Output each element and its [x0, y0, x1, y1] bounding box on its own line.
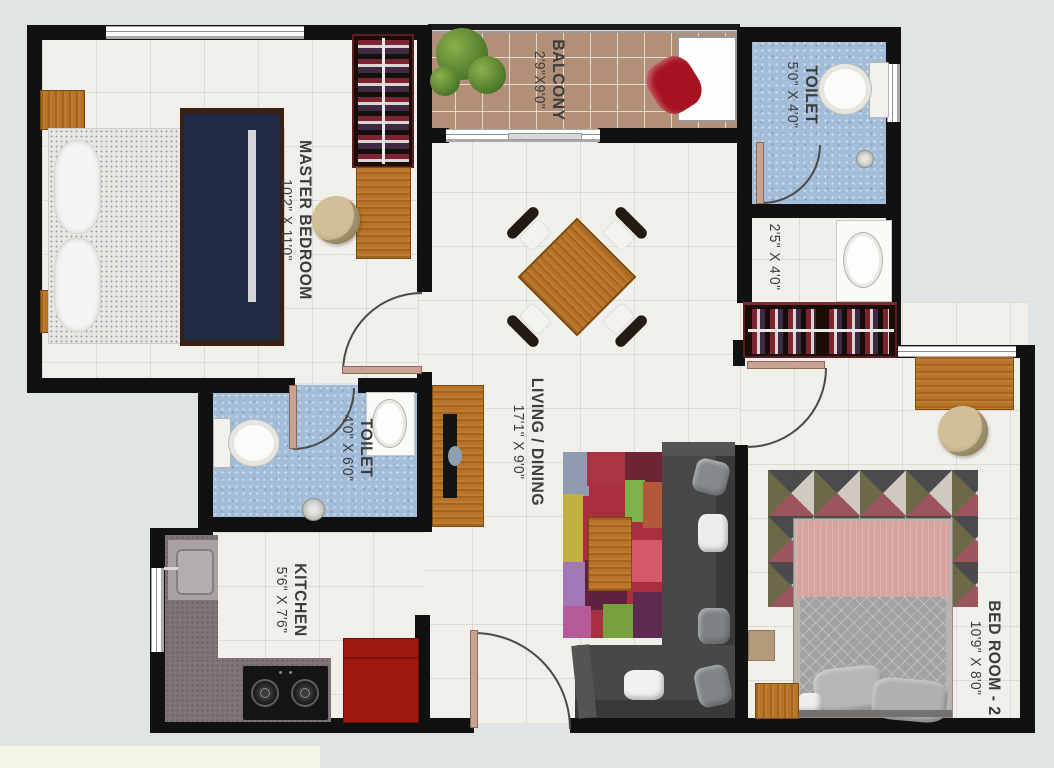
room-dims: 2'9"X9'0": [530, 39, 548, 120]
sofa-pillow: [698, 514, 728, 552]
room-dims: 2'5" X 4'0": [765, 224, 783, 291]
tv-console-dot: [448, 446, 462, 466]
sofa-pillow: [698, 608, 730, 644]
master-desk: [356, 167, 411, 259]
kitchen-window: [151, 568, 164, 652]
shower-drain: [302, 498, 325, 521]
room-name: TOILET: [356, 415, 376, 482]
bedroom2-desk-chair: [938, 406, 988, 456]
main-entrance-door-leaf: [470, 630, 478, 728]
room-label-living-dining: LIVING / DINING 17'1" X 9'0": [509, 378, 547, 506]
rug-patch: [603, 604, 633, 638]
wardrobe-clothes: [358, 40, 382, 162]
room-dims: 4'0" X 6'0": [338, 415, 356, 482]
rug-patch: [563, 494, 583, 564]
stove-knob: [289, 671, 292, 674]
side-table: [748, 630, 775, 661]
nightstand: [755, 683, 799, 719]
sofa-armrest: [662, 442, 735, 456]
room-name: KITCHEN: [290, 563, 310, 636]
sink-basin: [176, 549, 214, 595]
coffee-table: [588, 517, 632, 591]
bedroom2-door-leaf: [747, 361, 825, 369]
room-label-bedroom-2: BED ROOM - 2 10'9" X 8'0": [966, 600, 1004, 715]
gas-stove: [243, 666, 328, 720]
room-label-toilet-left: TOILET 4'0" X 6'0": [338, 415, 376, 482]
stove-knob: [279, 671, 282, 674]
bedroom2-bed: [793, 518, 953, 718]
room-name: LIVING / DINING: [527, 378, 547, 506]
room-name: BED ROOM - 2: [984, 600, 1004, 715]
wall-bottom-right: [570, 718, 1035, 733]
rug-patch: [563, 562, 587, 608]
toilet-bowl: [818, 63, 872, 115]
rug-patch: [587, 452, 627, 486]
master-door-leaf: [342, 366, 422, 374]
master-wardrobe: [352, 34, 414, 168]
master-window: [106, 26, 304, 39]
room-label-master-bedroom: MASTER BEDROOM 10'2" X 11'0": [277, 140, 315, 300]
wall-top-toilet: [737, 27, 901, 42]
sink-faucet: [164, 567, 178, 570]
bed-blanket: [796, 521, 950, 599]
toilet-tank: [869, 62, 889, 118]
wall-master-bottom: [27, 378, 295, 393]
wall-master-right-upper: [417, 25, 432, 292]
rug-patch: [563, 606, 591, 638]
stove-burner: [251, 679, 279, 707]
master-bed-blanket: [184, 114, 280, 340]
bedroom2-window: [898, 346, 1016, 357]
stove-burner: [291, 679, 319, 707]
fridge-door-line: [344, 657, 418, 659]
refrigerator: [343, 638, 419, 723]
wardrobe-rod: [382, 38, 385, 164]
wall-living-bedroom2-divider: [733, 445, 748, 733]
pillow: [54, 140, 101, 234]
toilet-top-door-leaf: [756, 142, 764, 204]
wall-toilet-passage: [737, 204, 901, 218]
wall-balcony-living-right: [598, 128, 750, 143]
kitchen-sink: [168, 540, 218, 600]
room-label-toilet-top: TOILET 5'0" X 4'0": [783, 62, 821, 129]
toilet-left-door-leaf: [289, 385, 297, 449]
sofa-pillow: [624, 670, 664, 700]
bedroom2-wardrobe: [743, 302, 897, 358]
floor-plan: MASTER BEDROOM 10'2" X 11'0" BALCONY 2'9…: [0, 0, 1054, 768]
shower-drain: [856, 150, 874, 168]
wall-left-master: [27, 25, 42, 393]
balcony-plant: [430, 66, 460, 96]
room-dims: 10'9" X 8'0": [966, 600, 984, 715]
bed-headboard: [794, 710, 952, 717]
room-label-passage: 2'5" X 4'0": [765, 224, 783, 291]
washbasin: [372, 399, 407, 448]
room-dims: 10'2" X 11'0": [277, 140, 295, 300]
washbasin: [843, 232, 883, 288]
pillow: [54, 238, 101, 332]
toilet-bowl: [228, 419, 280, 467]
room-dims: 17'1" X 9'0": [509, 378, 527, 506]
room-name: TOILET: [801, 62, 821, 129]
bedroom2-desk: [915, 356, 1014, 410]
room-name: MASTER BEDROOM: [295, 140, 315, 300]
rug-patch: [633, 592, 663, 638]
master-desk-chair: [312, 196, 360, 244]
wardrobe-rod: [748, 329, 894, 332]
room-dims: 5'0" X 4'0": [783, 62, 801, 129]
wardrobe-clothes: [385, 40, 409, 162]
room-name: BALCONY: [548, 39, 568, 120]
rug-patch: [643, 482, 663, 528]
nightstand: [40, 90, 85, 130]
wall-bedroom2-right: [1020, 345, 1035, 733]
legend-strip: [0, 746, 320, 768]
rug-patch: [625, 452, 663, 482]
balcony-plant: [468, 56, 506, 94]
wall-toilet-left-left: [198, 378, 213, 532]
room-dims: 5'6" X 7'6": [272, 563, 290, 636]
master-bed-runner: [248, 130, 256, 302]
rug-patch: [625, 480, 645, 522]
balcony-slider-panel: [508, 133, 582, 140]
room-label-kitchen: KITCHEN 5'6" X 7'6": [272, 563, 310, 636]
wall-balcony-parapet: [428, 24, 740, 30]
wall-toilet-left-right: [417, 372, 432, 532]
rug-patch: [563, 452, 589, 496]
wall-living-toilet-divider: [737, 27, 752, 303]
room-label-balcony: BALCONY 2'9"X9'0": [530, 39, 568, 120]
